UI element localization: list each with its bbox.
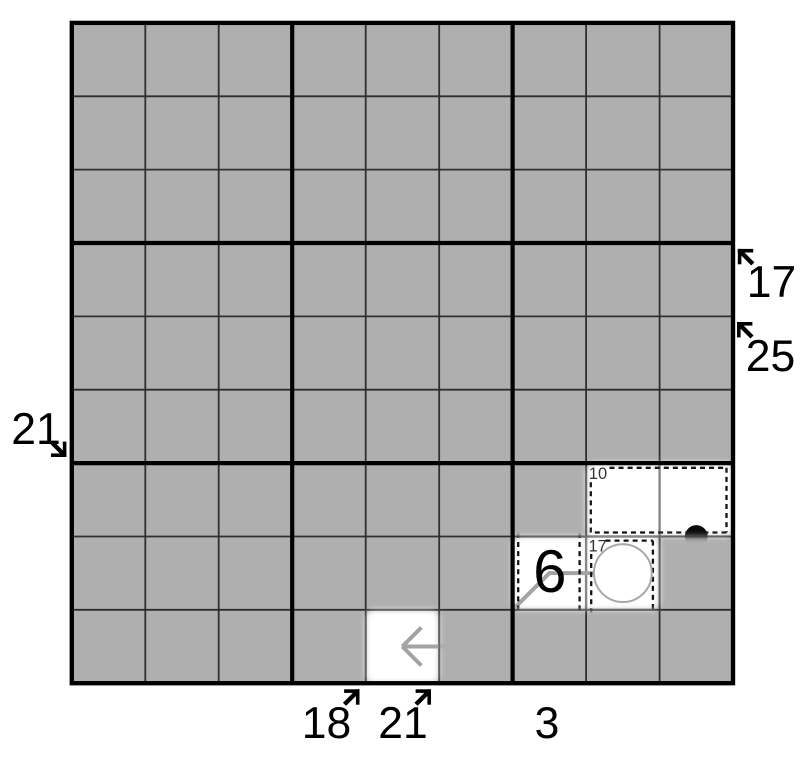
svg-text:21: 21 [378,699,428,748]
svg-text:18: 18 [302,699,352,748]
svg-text:3: 3 [535,699,560,748]
svg-text:17: 17 [747,258,797,307]
svg-text:25: 25 [746,332,796,381]
